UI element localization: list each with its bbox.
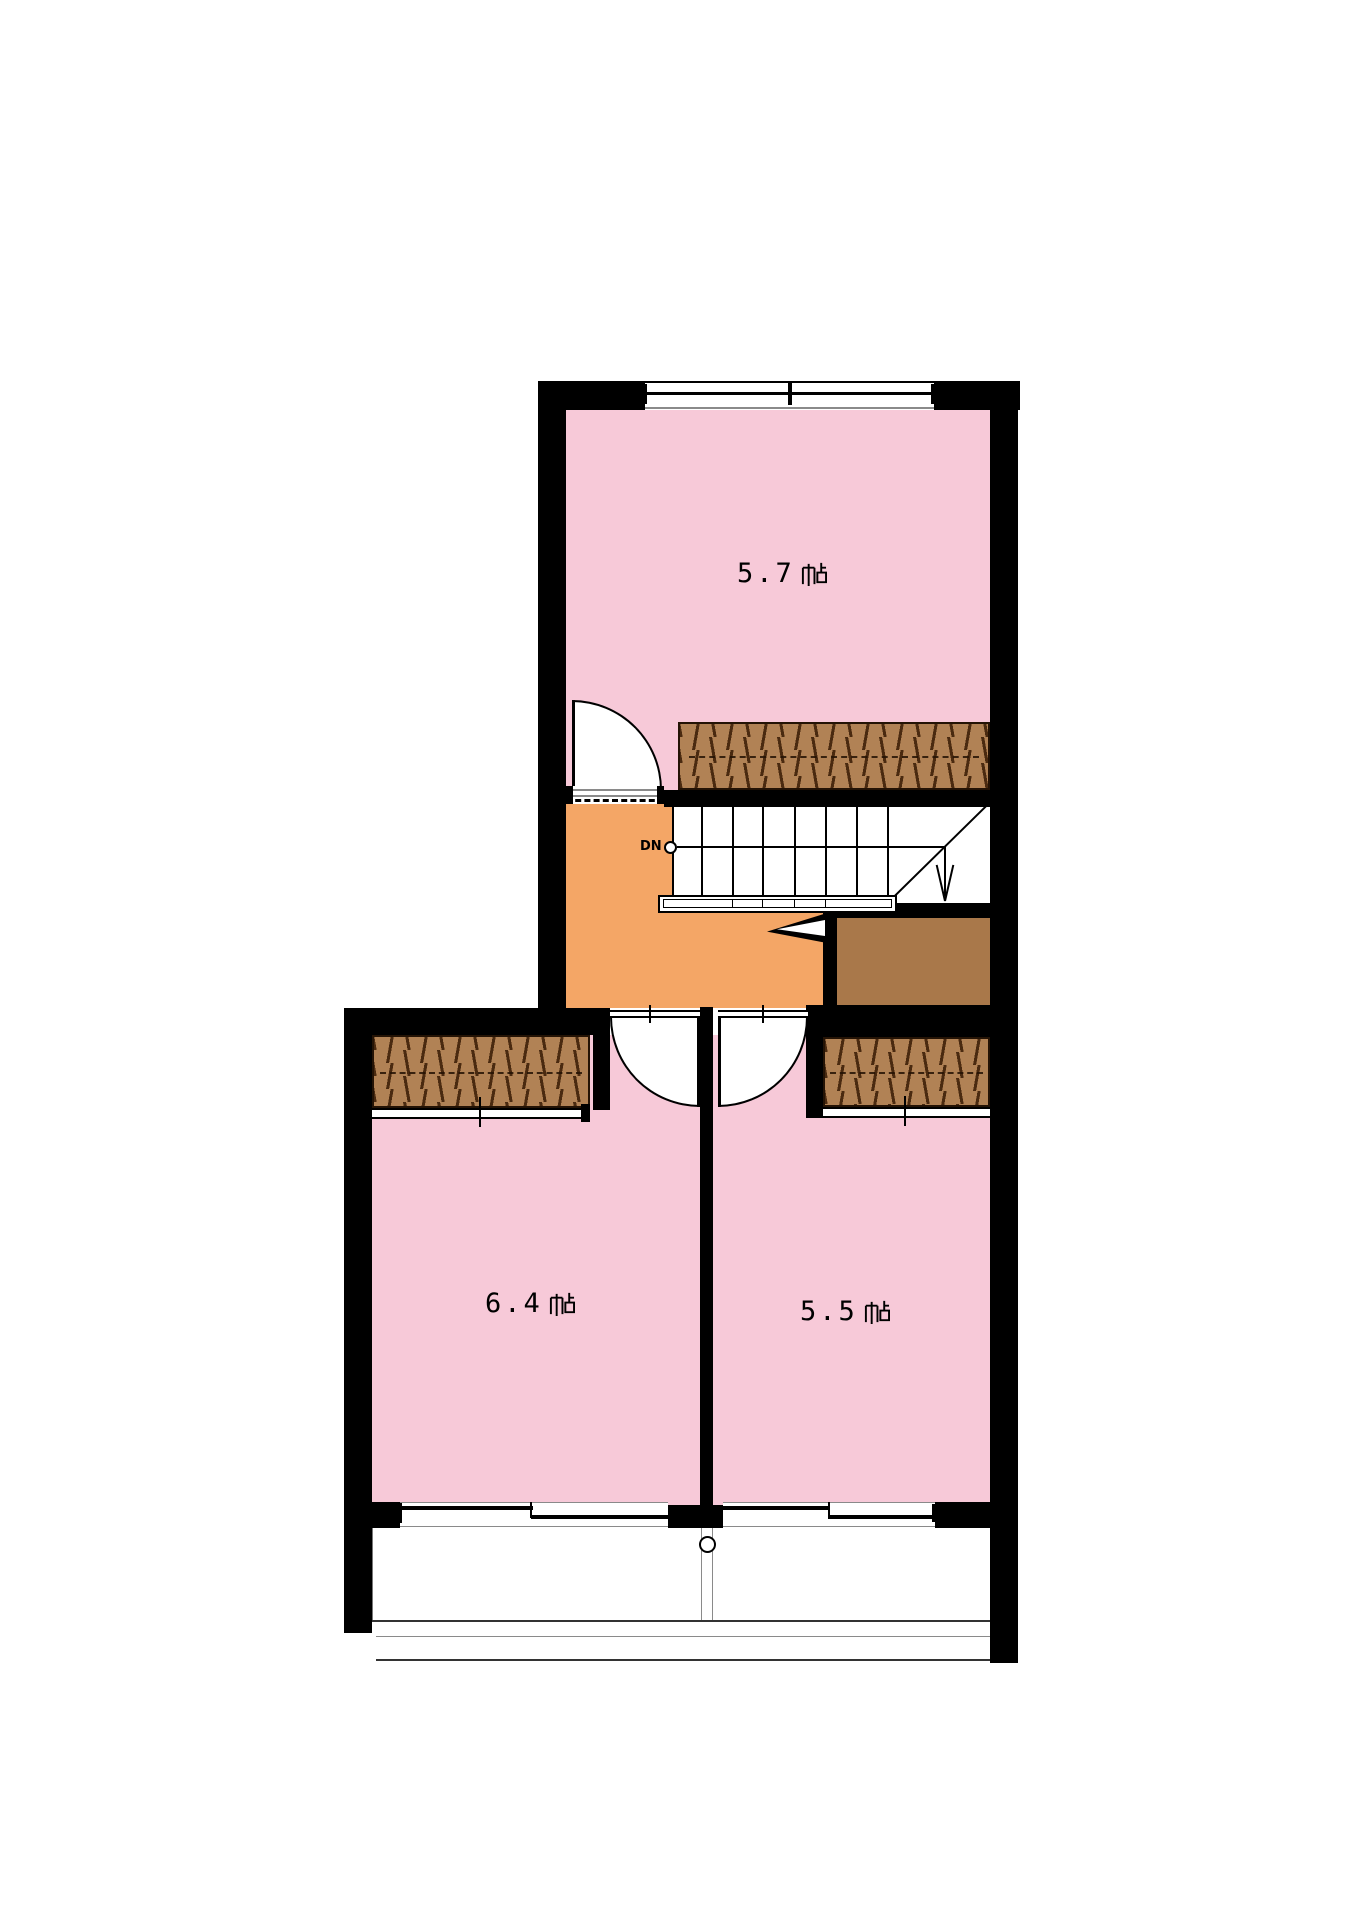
threshold-line-2 [566, 795, 664, 797]
room-size-value: 5.7 [737, 558, 795, 589]
window-frame-line [723, 1526, 935, 1527]
railing-tick [732, 900, 733, 908]
wall-left-upper [538, 410, 566, 1035]
stair-tread [887, 806, 889, 895]
balcony-inner-edge-line [372, 1620, 990, 1622]
balcony-rail-mid-line [376, 1636, 990, 1637]
closet-lower-right-room [823, 1037, 990, 1107]
window-top-center-mullion [788, 383, 792, 405]
stair-tread [794, 806, 796, 895]
wall-top-left-block [538, 381, 645, 410]
wall-window-band-right-block [935, 1502, 1018, 1528]
closet-grain-line [689, 756, 979, 758]
closet-lower-right-sliding-front [823, 1107, 990, 1118]
window-center-tick [828, 1502, 830, 1518]
closet-front-center-tick [479, 1097, 481, 1127]
wall-jamb-left-door [593, 1035, 610, 1110]
window-center-tick [530, 1502, 532, 1518]
window-top-end-tick-right [931, 384, 934, 404]
closet-lower-left-room [372, 1035, 590, 1108]
window-frame-line [400, 1526, 668, 1527]
closet-hall [837, 918, 990, 1005]
window-lower-right-sash-1 [723, 1506, 830, 1510]
threshold-line-1 [566, 789, 664, 791]
window-lower-left-sash-1 [400, 1506, 533, 1510]
stair-tread [701, 806, 703, 895]
room-lower-right-label: 5.5 [800, 1296, 890, 1327]
window-lower-right-sash-2 [828, 1515, 935, 1519]
stairs-railing-inner-line [663, 899, 892, 908]
stairs-down-label: DN [640, 839, 662, 854]
stairs-direction-line [677, 846, 946, 848]
stair-tread [825, 806, 827, 895]
wall-window-band-center-post [668, 1505, 723, 1528]
balcony-fixture-circle-icon [699, 1536, 716, 1553]
wall-jamb-right-door [806, 1005, 823, 1118]
window-top-inner-face-line [645, 407, 934, 409]
threshold-tick-left [566, 786, 573, 804]
room-upper-label: 5.7 [737, 558, 827, 589]
window-lower-left-sash-2 [531, 1515, 668, 1519]
door-lower-left-track [610, 1010, 700, 1018]
closet-front-center-tick [904, 1096, 906, 1126]
closet-grain-line [830, 1072, 983, 1074]
wall-window-band-left-block [344, 1502, 400, 1528]
stairs-direction-origin-circle [664, 841, 677, 854]
room-size-value: 6.4 [485, 1288, 543, 1319]
floor-plan-canvas: DN 5.7 6.4 [0, 0, 1358, 1920]
window-frame-line [400, 1502, 668, 1503]
stair-tread [762, 806, 764, 895]
wall-extension-top [344, 1008, 610, 1035]
window-end-tick [932, 1504, 935, 1522]
balcony-floor [372, 1528, 990, 1620]
wall-room-divider [700, 1007, 713, 1506]
closet-grain-line [380, 1072, 581, 1074]
door-track-tick [649, 1005, 651, 1023]
closet-upper-room [678, 722, 990, 790]
hall-fill-left [566, 800, 673, 1008]
jou-unit-glyph [863, 1298, 890, 1325]
wall-room-stairs-divider [664, 790, 990, 807]
stair-tread [856, 806, 858, 895]
door-track-tick [762, 1005, 764, 1023]
jou-unit-glyph [548, 1290, 575, 1317]
closet-lower-left-sliding-front [372, 1108, 581, 1119]
railing-tick [794, 900, 795, 908]
closet-front-post [363, 1104, 372, 1122]
wall-top-right-block [934, 381, 1020, 410]
wall-left-lower [344, 1035, 372, 1633]
window-top-end-tick-left [644, 384, 647, 404]
room-size-value: 5.5 [800, 1296, 858, 1327]
railing-tick [762, 900, 763, 908]
stair-tread [732, 806, 734, 895]
balcony-outer-edge-line [376, 1659, 990, 1661]
threshold-tick-right [657, 786, 664, 804]
threshold-dashed-opening [566, 799, 664, 802]
room-lower-left-label: 6.4 [485, 1288, 575, 1319]
railing-tick [825, 900, 826, 908]
jou-unit-glyph [800, 560, 827, 587]
wall-hall-bottom-right [823, 1005, 1018, 1037]
window-end-tick [399, 1503, 402, 1523]
closet-front-post [581, 1104, 590, 1122]
